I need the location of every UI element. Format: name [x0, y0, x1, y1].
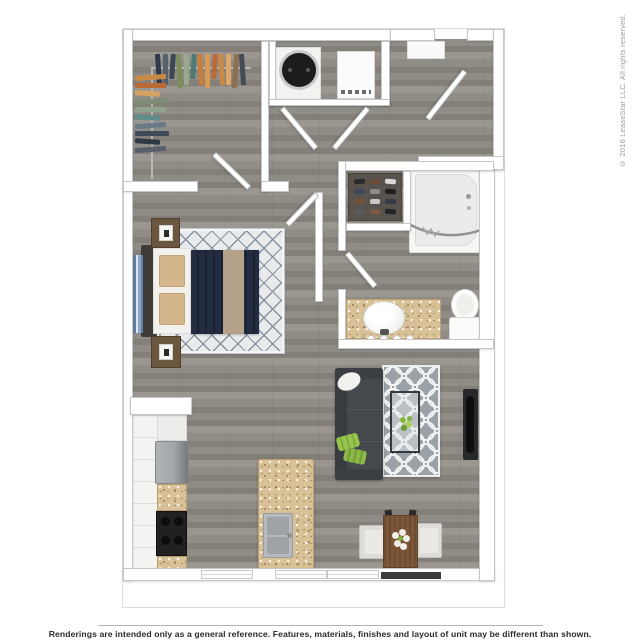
wall-bathroom-left — [338, 161, 346, 251]
burner — [174, 517, 183, 526]
wall-right — [479, 161, 495, 581]
baseboard-vent — [381, 572, 441, 579]
washer-knob — [306, 68, 310, 72]
dryer — [337, 51, 375, 99]
bed-pillow — [159, 255, 185, 287]
floorplan-canvas — [122, 28, 505, 608]
coffee-table — [390, 391, 420, 453]
kitchen-counter-granite — [157, 484, 187, 511]
dining-table — [383, 515, 418, 568]
footer-divider — [98, 625, 543, 626]
toilet-tank — [449, 317, 481, 341]
kitchen-counter — [157, 415, 187, 441]
wall-laundry-left — [269, 41, 276, 106]
bed-pillow — [159, 293, 185, 325]
nightstand — [151, 218, 180, 248]
wall-closet-bottom — [123, 181, 198, 192]
faucet — [287, 533, 292, 538]
bed-throw-blanket — [223, 250, 244, 334]
window — [327, 570, 379, 579]
wall-laundry-right — [381, 41, 390, 106]
sink-basin — [267, 517, 289, 535]
flower-centerpiece — [400, 543, 407, 550]
chair-seat — [365, 530, 383, 554]
tub-faucet — [466, 194, 471, 199]
flower-centerpiece — [403, 535, 410, 542]
lamp-bulb — [164, 230, 169, 237]
table-lamp — [159, 225, 173, 241]
kitchen-cabinets — [131, 415, 159, 573]
tub-drain — [467, 206, 471, 210]
hanging-clothes-top — [156, 54, 245, 88]
toilet-seat — [456, 294, 474, 316]
refrigerator — [155, 441, 189, 484]
burner — [161, 536, 170, 545]
wall-closet-right — [261, 41, 269, 192]
window — [201, 570, 253, 579]
bedroom-window-art — [133, 255, 143, 333]
washer-knob — [288, 68, 292, 72]
tv-console — [463, 389, 478, 460]
floorplan-rendering: Renderings are intended only as a genera… — [0, 0, 640, 640]
table-plant — [407, 416, 412, 421]
tv-screen — [466, 396, 474, 453]
washer-drum — [279, 50, 319, 90]
entry-light — [407, 41, 445, 59]
island-sink — [263, 513, 293, 558]
dining-chair — [417, 523, 442, 558]
flower-leaf — [398, 536, 403, 541]
wall-hallway-bedroom — [315, 192, 323, 302]
table-plant — [401, 425, 407, 431]
wall-top — [123, 29, 393, 41]
disclaimer-text: Renderings are intended only as a genera… — [0, 629, 640, 639]
chair-seat — [420, 528, 438, 553]
window — [275, 570, 327, 579]
burner — [161, 517, 170, 526]
lamp-bulb — [164, 349, 169, 356]
hanging-clothes-side — [135, 75, 169, 152]
burner — [174, 536, 183, 545]
dining-chair — [359, 525, 384, 559]
wall-bedroom-top — [261, 181, 289, 192]
copyright-text: © 2016 LeaseStar LLC. All rights reserve… — [618, 8, 627, 168]
dryer-controls — [341, 90, 371, 94]
sink-basin — [267, 537, 289, 554]
wall-right-entry — [493, 29, 504, 170]
stove — [156, 511, 187, 556]
wall-kitchen-stub — [130, 397, 192, 415]
nightstand — [151, 336, 181, 368]
table-lamp — [159, 344, 173, 360]
wall-shoe-closet — [346, 223, 411, 231]
wall-top-entry — [390, 29, 435, 41]
cushion-seam — [347, 409, 383, 410]
wall-bathroom-top — [338, 161, 494, 171]
wall-shoe-closet — [403, 171, 411, 231]
wall-bathroom-bottom — [338, 339, 494, 349]
wall-left — [123, 29, 133, 581]
laundry-sill — [269, 99, 390, 106]
sofa-armrest — [335, 469, 383, 480]
